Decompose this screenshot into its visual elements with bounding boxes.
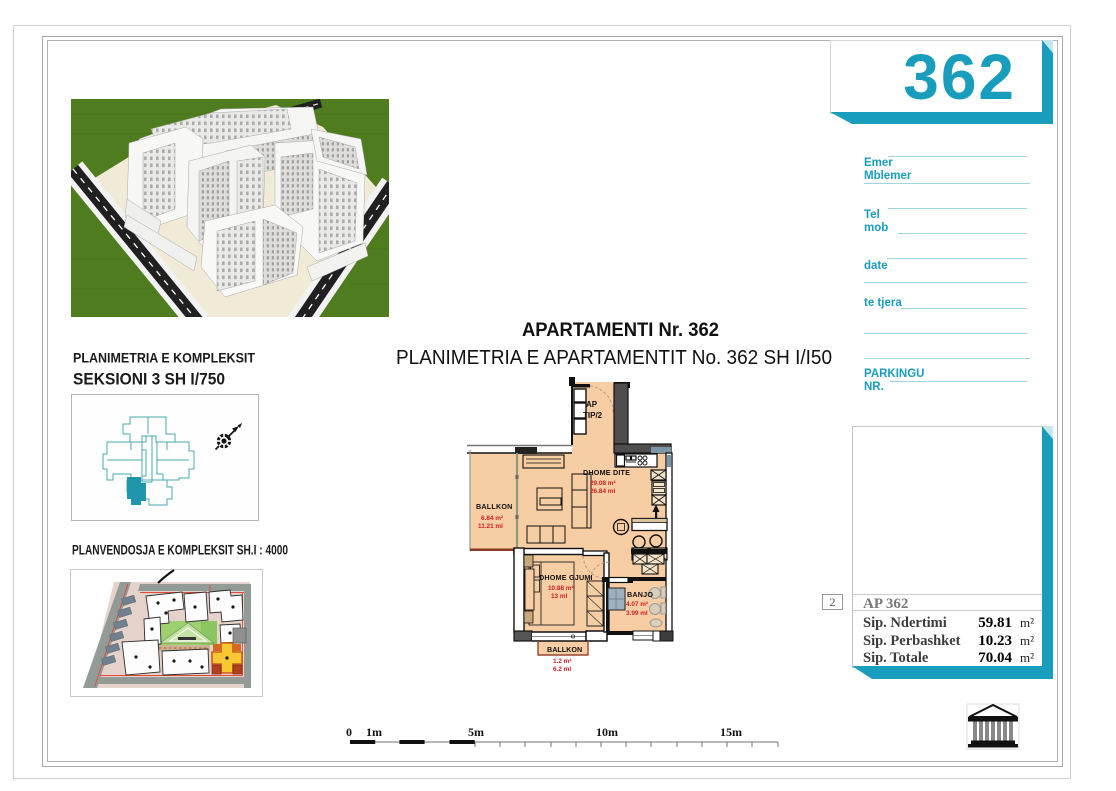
svg-text:BALLKON: BALLKON (476, 502, 513, 511)
svg-text:AP: AP (586, 400, 598, 409)
svg-text:4.07 m²: 4.07 m² (626, 601, 648, 608)
svg-text:13 ml: 13 ml (551, 593, 568, 600)
svg-text:1m: 1m (366, 725, 382, 739)
svg-text:5m: 5m (468, 725, 484, 739)
svg-text:PLANIMETRIA E KOMPLEKSIT: PLANIMETRIA E KOMPLEKSIT (73, 350, 255, 366)
svg-text:3.99 ml: 3.99 ml (626, 610, 648, 617)
svg-text:29.08 m²: 29.08 m² (590, 480, 616, 487)
svg-text:1.2 m²: 1.2 m² (553, 658, 571, 665)
svg-text:TIP/2: TIP/2 (583, 411, 603, 420)
svg-text:6.84 m²: 6.84 m² (481, 515, 503, 522)
svg-text:PLANVENDOSJA E KOMPLEKSIT SH.I: PLANVENDOSJA E KOMPLEKSIT SH.I : 4000 (72, 543, 288, 558)
svg-text:11.21 ml: 11.21 ml (478, 523, 503, 530)
svg-text:10m: 10m (596, 725, 618, 739)
svg-text:BALLKON: BALLKON (547, 645, 582, 654)
svg-text:PLANIMETRIA E APARTAMENTIT No.: PLANIMETRIA E APARTAMENTIT No. 362 SH I/… (396, 347, 832, 366)
svg-text:DHOME DITE: DHOME DITE (583, 468, 630, 477)
svg-text:DHOME GJUMI: DHOME GJUMI (539, 573, 593, 582)
svg-text:26.84 ml: 26.84 ml (590, 488, 615, 495)
svg-text:6.2 ml: 6.2 ml (553, 666, 571, 673)
svg-text:15m: 15m (720, 725, 742, 739)
svg-text:SEKSIONI 3 SH I/750: SEKSIONI 3 SH I/750 (73, 370, 225, 389)
svg-text:APARTAMENTI Nr. 362: APARTAMENTI Nr. 362 (522, 320, 719, 341)
svg-text:BANJO: BANJO (627, 590, 653, 599)
svg-text:10.88 m²: 10.88 m² (548, 585, 574, 592)
svg-text:0: 0 (346, 725, 352, 739)
